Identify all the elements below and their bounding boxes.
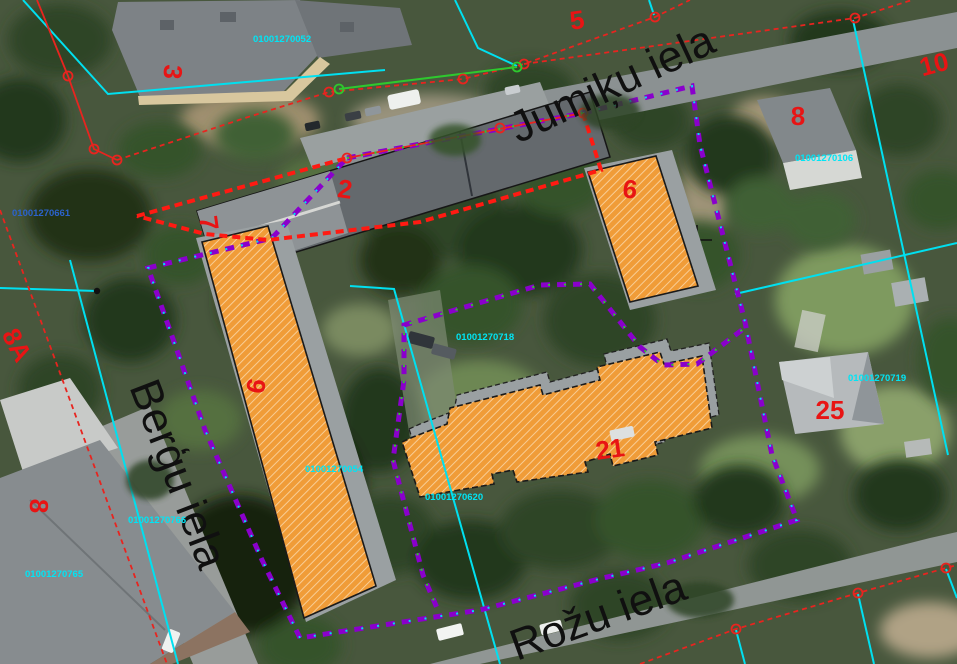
cadastral-map: Jumiķu iela Berģu iela Rožu iela 3 5 10 … [0, 0, 957, 664]
black-survey-dot [94, 288, 100, 294]
parcel-label-8-ne: 8 [791, 101, 805, 131]
code-label-01001270054: 01001270054 [305, 464, 364, 475]
code-label-01001270766: 01001270766 [128, 515, 186, 526]
parcel-label-21: 21 [594, 432, 627, 466]
code-label-01001270052: 01001270052 [253, 34, 311, 45]
parcel-label-25: 25 [816, 395, 845, 425]
code-label-01001270718: 01001270718 [456, 332, 514, 343]
parcel-label-3: 3 [157, 63, 188, 80]
parcel-label-8-w: 8 [24, 498, 54, 514]
code-label-01001270719: 01001270719 [848, 373, 906, 384]
code-label-01001270106: 01001270106 [795, 153, 853, 164]
map-viewport: Jumiķu iela Berģu iela Rožu iela 3 5 10 … [0, 0, 957, 664]
code-label-01001270661: 01001270661 [12, 208, 71, 219]
code-label-01001270765: 01001270765 [25, 569, 84, 580]
code-label-01001270620: 01001270620 [425, 492, 483, 503]
